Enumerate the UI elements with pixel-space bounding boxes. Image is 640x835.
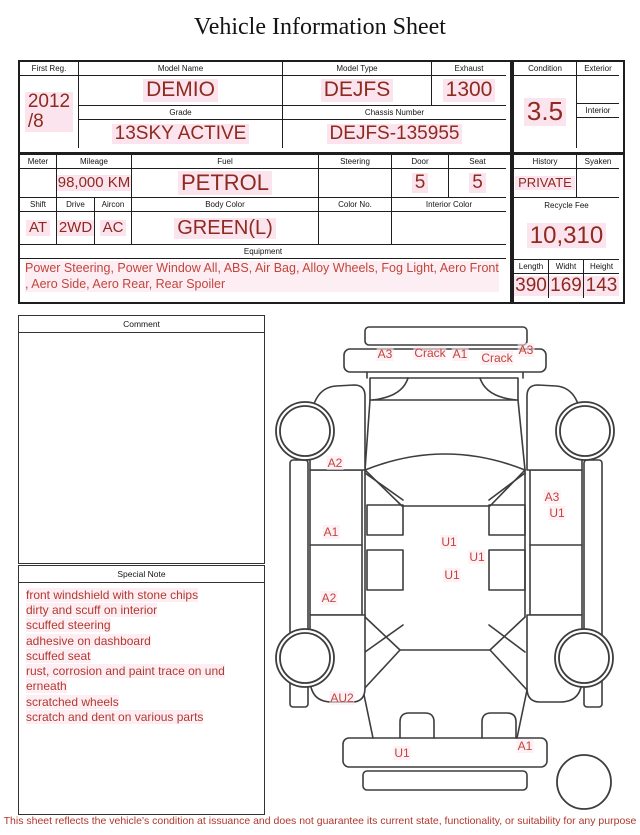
damage-labels: A3CrackA1CrackA3A2A1A2U1U1U1A3U1AU2U1A1 (270, 310, 640, 810)
model-name-label: Model Name (79, 62, 283, 76)
steering-label: Steering (319, 155, 392, 169)
recycle-fee-label: Recycle Fee (514, 198, 619, 212)
chassis-number-label: Chassis Number (283, 106, 506, 120)
model-type-value: DEJFS (283, 76, 432, 106)
damage-label: A3 (518, 343, 535, 357)
damage-label: U1 (393, 746, 410, 760)
damage-label: Crack (413, 346, 446, 360)
length-value: 390 (514, 274, 549, 298)
recycle-fee-value: 10,310 (514, 212, 619, 260)
history-value: PRIVATE (514, 169, 577, 198)
comment-panel: Comment (18, 315, 265, 564)
exterior-label: Exterior (577, 62, 619, 76)
disclaimer-text: This sheet reflects the vehicle's condit… (0, 815, 640, 827)
damage-label: U1 (468, 550, 485, 564)
page-title: Vehicle Information Sheet (0, 14, 640, 41)
exhaust-value: 1300 (432, 76, 506, 106)
history-table: History Syaken PRIVATE Recycle Fee 10,31… (512, 153, 625, 304)
condition-value: 3.5 (514, 76, 577, 148)
first-reg-label: First Reg. (20, 62, 79, 76)
interior-value (577, 118, 619, 148)
shift-value: AT (20, 212, 57, 245)
length-label: Length (514, 260, 549, 274)
damage-label: A1 (323, 525, 340, 539)
history-label: History (514, 155, 577, 169)
damage-label: A1 (452, 347, 469, 361)
damage-label: A2 (321, 591, 338, 605)
mileage-value: 98,000 KM (57, 169, 132, 198)
mileage-label: Mileage (57, 155, 132, 169)
drive-label: Drive (57, 198, 95, 212)
grade-label: Grade (79, 106, 283, 120)
exhaust-label: Exhaust (432, 62, 506, 76)
special-note-panel: Special Note front windshield with stone… (18, 565, 265, 815)
fuel-label: Fuel (132, 155, 319, 169)
car-damage-diagram: A3CrackA1CrackA3A2A1A2U1U1U1A3U1AU2U1A1 (270, 310, 640, 810)
condition-label: Condition (514, 62, 577, 76)
color-no-value (319, 212, 392, 245)
interior-color-value (392, 212, 506, 245)
equipment-value: Power Steering, Power Window All, ABS, A… (20, 259, 506, 298)
drive-value: 2WD (57, 212, 95, 245)
meter-label: Meter (20, 155, 57, 169)
chassis-number-value: DEJFS-135955 (283, 120, 506, 148)
body-color-label: Body Color (132, 198, 319, 212)
height-value: 143 (584, 274, 619, 298)
details-table: Meter Mileage Fuel Steering Door Seat 98… (18, 153, 512, 304)
special-note-body: front windshield with stone chips dirty … (19, 583, 264, 814)
seat-value: 5 (449, 169, 506, 198)
door-value: 5 (392, 169, 449, 198)
damage-label: A1 (517, 739, 534, 753)
comment-body (19, 333, 264, 563)
damage-label: A3 (544, 490, 561, 504)
equipment-label: Equipment (20, 245, 506, 259)
grade-value: 13SKY ACTIVE (79, 120, 283, 148)
seat-label: Seat (449, 155, 506, 169)
aircon-label: Aircon (95, 198, 132, 212)
steering-value (319, 169, 392, 198)
comment-header: Comment (19, 316, 264, 333)
first-reg-value: 2012 /8 (20, 76, 79, 148)
vehicle-table: First Reg. 2012 /8 Model Name Model Type… (18, 60, 512, 154)
width-label: Widht (549, 260, 584, 274)
damage-label: U1 (443, 568, 460, 582)
body-color-value: GREEN(L) (132, 212, 319, 245)
condition-table: Condition Exterior 3.5 Interior (512, 60, 625, 154)
model-type-label: Model Type (283, 62, 432, 76)
interior-color-label: Interior Color (392, 198, 506, 212)
meter-value (20, 169, 57, 198)
aircon-value: AC (95, 212, 132, 245)
damage-label: AU2 (329, 691, 354, 705)
special-note-header: Special Note (19, 566, 264, 583)
model-name-value: DEMIO (79, 76, 283, 106)
damage-label: A2 (327, 456, 344, 470)
shift-label: Shift (20, 198, 57, 212)
color-no-label: Color No. (319, 198, 392, 212)
exterior-value (577, 76, 619, 104)
syaken-value (577, 169, 619, 198)
height-label: Height (584, 260, 619, 274)
fuel-value: PETROL (132, 169, 319, 198)
damage-label: Crack (480, 351, 513, 365)
interior-label: Interior (577, 104, 619, 118)
damage-label: U1 (548, 506, 565, 520)
syaken-label: Syaken (577, 155, 619, 169)
damage-label: U1 (440, 535, 457, 549)
vehicle-information-sheet: Vehicle Information Sheet First Reg. 201… (0, 0, 640, 835)
width-value: 169 (549, 274, 584, 298)
damage-label: A3 (377, 347, 394, 361)
door-label: Door (392, 155, 449, 169)
